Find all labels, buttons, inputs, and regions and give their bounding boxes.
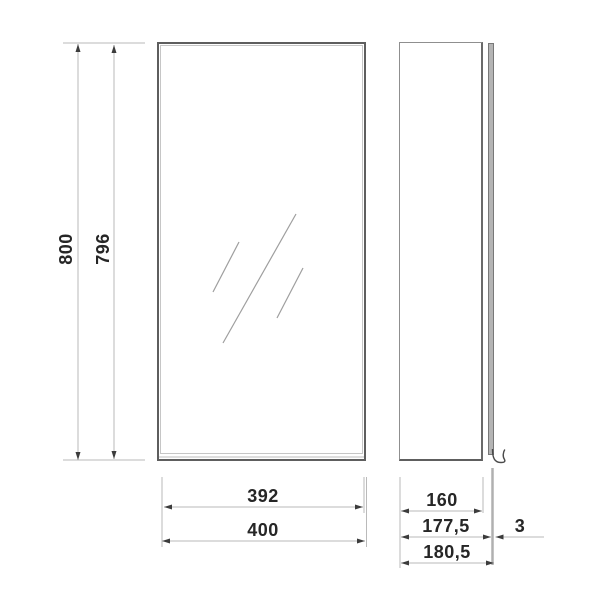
arrow-800-up [76,44,81,52]
glint-line-center [223,214,296,343]
technical-drawing-canvas: 800 796 392 400 160 177,5 3 180,5 [0,0,603,603]
arrow-392-right [355,505,363,510]
arrow-796-up [112,45,117,53]
arrow-177-right [483,535,491,540]
arrow-392-left [164,505,172,510]
arrow-3-left [496,535,504,540]
glint-line-left [213,242,239,292]
dim-label-depth-without-glass: 177,5 [406,517,486,535]
arrow-400-left [162,539,170,544]
glint-line-right [277,268,303,318]
dim-label-depth-total: 180,5 [407,543,487,561]
mirror-glint-lines [213,214,303,343]
arrow-796-down [112,451,117,459]
dimension-lines [78,44,544,563]
dim-label-width-door: 392 [233,487,293,505]
arrow-160-left [401,509,409,514]
dim-label-height-door: 796 [94,229,112,269]
arrow-180-left [401,561,409,566]
arrow-160-right [474,509,482,514]
dimension-linework [0,0,603,603]
arrow-177-left [401,535,409,540]
dim-label-width-total: 400 [233,521,293,539]
dim-label-height-total: 800 [57,229,75,269]
dim-label-depth-body: 160 [412,491,472,509]
dim-label-glass-thickness: 3 [500,517,540,535]
arrow-800-down [76,452,81,460]
arrow-400-right [357,539,365,544]
side-view-door-bottom-hook [493,449,505,463]
